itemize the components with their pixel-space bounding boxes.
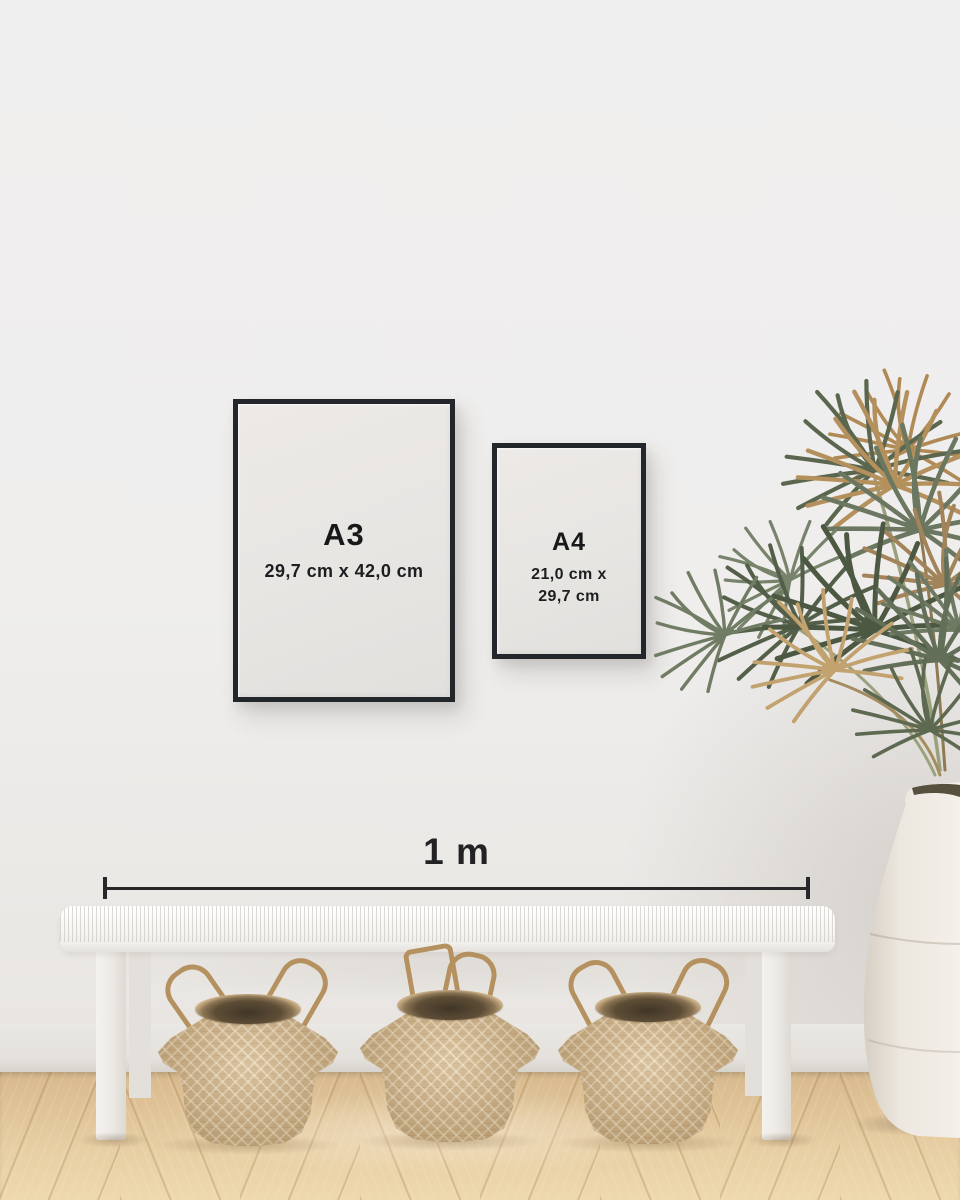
palm-plant-image — [640, 330, 960, 800]
basket-image-1 — [158, 996, 338, 1146]
a4-dimensions-text: 21,0 cm x 29,7 cm — [531, 564, 607, 609]
basket-image-2 — [360, 992, 540, 1142]
a4-size-label: A4 — [531, 530, 607, 555]
scale-bar — [103, 877, 810, 899]
bench-leg-shadow — [78, 1132, 150, 1148]
a4-poster-paper: A4 21,0 cm x 29,7 cm — [497, 448, 641, 654]
a3-size-label: A3 — [265, 519, 424, 550]
basket-body — [158, 1008, 338, 1146]
basket-opening — [195, 994, 301, 1024]
bench-leg-front-right — [762, 948, 791, 1140]
bench-leg-shadow — [746, 1132, 818, 1148]
a4-dimensions-line1: 21,0 cm x — [531, 564, 607, 586]
basket-image-3 — [558, 994, 738, 1144]
a4-poster-frame: A4 21,0 cm x 29,7 cm — [492, 443, 646, 659]
bench-leg-front-left — [96, 948, 126, 1140]
basket-body — [360, 1004, 540, 1142]
bench-leg-back-left — [129, 948, 151, 1098]
basket-opening — [397, 990, 503, 1020]
a3-poster-paper: A3 29,7 cm x 42,0 cm — [238, 404, 450, 697]
scale-line — [103, 887, 810, 890]
scale-label: 1 m — [103, 831, 810, 873]
a3-poster-frame: A3 29,7 cm x 42,0 cm — [233, 399, 455, 702]
a3-dimensions-text: 29,7 cm x 42,0 cm — [265, 561, 424, 582]
a4-dimensions-line2: 29,7 cm — [531, 586, 607, 608]
basket-body — [558, 1006, 738, 1144]
basket-opening — [595, 992, 701, 1022]
vase-image — [846, 782, 960, 1138]
room-scene: A3 29,7 cm x 42,0 cm A4 21,0 cm x 29,7 c… — [0, 0, 960, 1200]
